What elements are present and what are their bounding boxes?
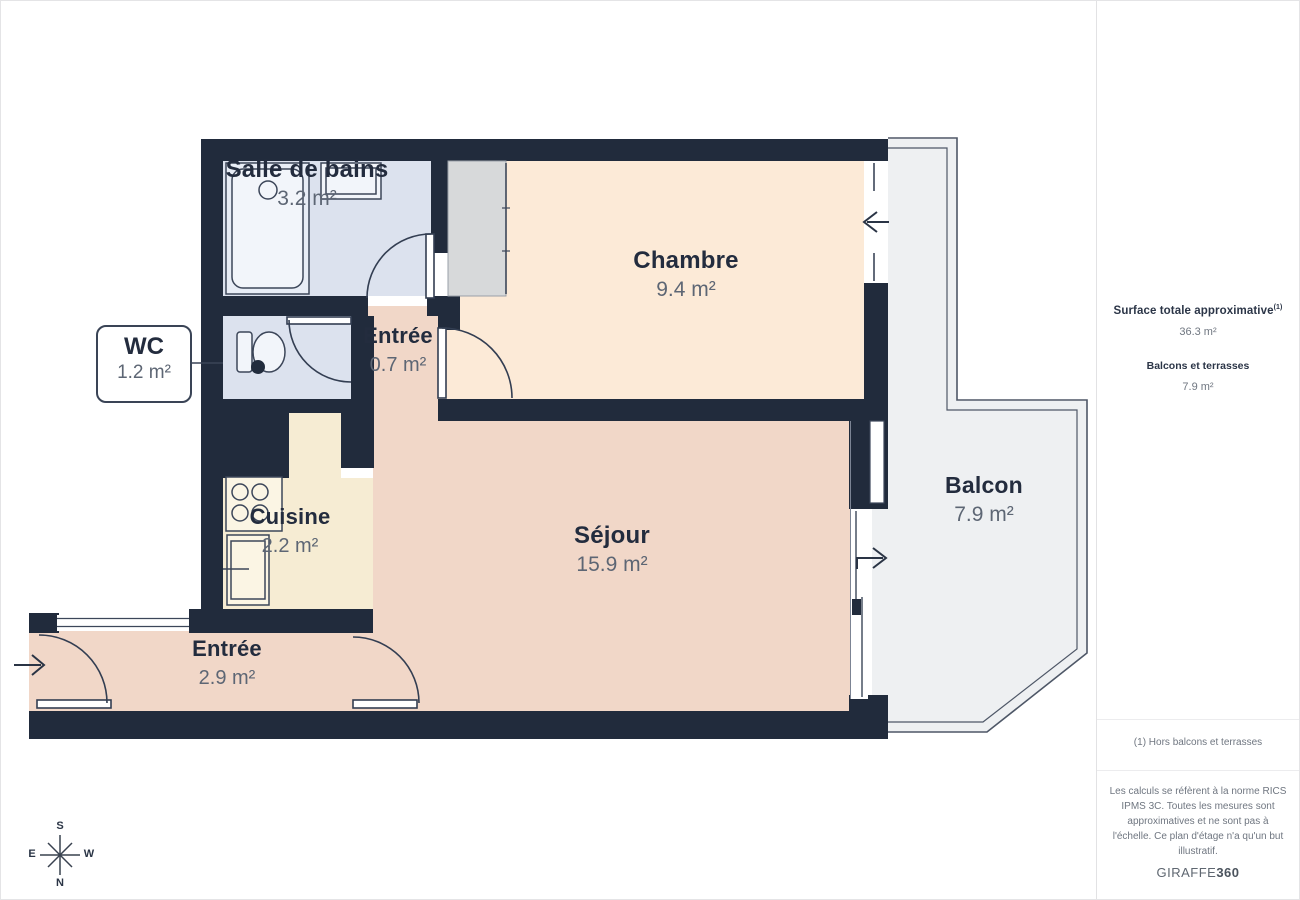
wall-top — [201, 139, 888, 161]
sidebar-divider-1 — [1097, 719, 1299, 720]
sejour-floor — [373, 421, 851, 713]
wall-wc-right — [351, 316, 374, 399]
wall-cuisine-top — [289, 399, 341, 413]
slider-handle — [852, 599, 861, 615]
wall-stub — [427, 296, 460, 316]
floorplan-page: Salle de bains 3.2 m² Chambre 9.4 m² Ent… — [0, 0, 1300, 900]
closet-body — [448, 161, 506, 296]
compass-north-label: N — [56, 877, 64, 889]
bathroom-door-leaf — [426, 234, 434, 298]
closet — [448, 161, 510, 296]
wc-callout: WC 1.2 m² — [96, 325, 192, 403]
chambre-door-leaf — [438, 328, 446, 398]
wall-entry-top-a — [29, 613, 59, 633]
wall-entry-top-b — [189, 609, 203, 633]
wall-bath-bottom — [201, 296, 368, 316]
wall-bottom — [29, 711, 888, 739]
hall-door-leaf — [353, 700, 417, 708]
bathtub-inner — [232, 169, 303, 288]
balcony-surface-value: 7.9 m² — [1097, 381, 1299, 393]
total-surface-value: 36.3 m² — [1097, 326, 1299, 338]
wc-door-leaf — [287, 317, 351, 324]
entree-haut-floor — [368, 306, 438, 421]
entrance-door-leaf — [37, 700, 111, 708]
brand-name: GIRAFFE — [1156, 865, 1216, 880]
sidebar-divider-2 — [1097, 770, 1299, 771]
footnote: (1) Hors balcons et terrasses — [1097, 737, 1299, 748]
entry-window-band — [57, 615, 189, 631]
balcony-shape — [872, 138, 1087, 732]
wall-chambre-bottom — [438, 399, 888, 421]
info-sidebar: Surface totale approximative(1) 36.3 m² … — [1096, 1, 1299, 899]
total-surface-text: Surface totale approximative — [1114, 305, 1274, 317]
compass-east-label: E — [28, 848, 35, 860]
giraffe360-logo: GIRAFFE360 — [1097, 865, 1299, 880]
total-surface-label: Surface totale approximative(1) — [1097, 304, 1299, 317]
room-name: WC — [98, 332, 190, 362]
wall-left — [201, 139, 223, 633]
compass-west-label: W — [84, 848, 94, 860]
wall-cuisine-right — [341, 399, 374, 468]
balcony-surface-label: Balcons et terrasses — [1097, 360, 1299, 372]
surface-summary: Surface totale approximative(1) 36.3 m² … — [1097, 304, 1299, 393]
toilet-tank — [237, 332, 252, 372]
brand-bold: 360 — [1216, 865, 1239, 880]
wall-cuisine-bottom — [201, 609, 373, 633]
balcony-fill — [872, 139, 1087, 732]
wall-duct — [223, 399, 289, 478]
total-surface-footnote-ref: (1) — [1274, 304, 1283, 311]
room-area: 1.2 m² — [98, 362, 190, 384]
kitchen-counter-icon — [227, 535, 269, 605]
stove-icon — [226, 477, 282, 531]
sejour-window — [870, 421, 884, 503]
disclaimer-text: Les calculs se réfèrent à la norme RICS … — [1108, 784, 1288, 859]
compass-star-icon — [40, 835, 80, 875]
toilet-dot — [251, 360, 265, 374]
compass-south-label: S — [56, 820, 63, 832]
